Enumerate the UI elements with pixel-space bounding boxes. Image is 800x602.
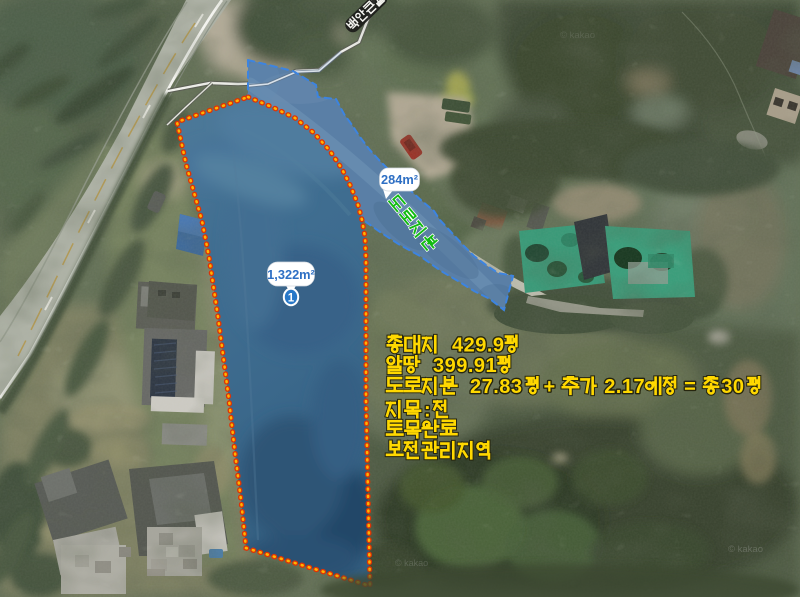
svg-text:© kakao: © kakao: [560, 30, 595, 41]
svg-text:2.17: 2.17: [604, 376, 645, 398]
svg-text:284m²: 284m²: [381, 172, 418, 187]
svg-text:© kakao: © kakao: [728, 544, 763, 555]
svg-text::: :: [424, 400, 431, 422]
svg-text:1,322m²: 1,322m²: [267, 267, 315, 282]
svg-text:27.83: 27.83: [470, 376, 523, 398]
svg-text:=: =: [684, 376, 696, 398]
svg-text:399.91: 399.91: [433, 355, 497, 377]
svg-text:429.9: 429.9: [452, 335, 505, 357]
svg-text:30: 30: [721, 376, 744, 398]
svg-text:1: 1: [288, 293, 295, 305]
svg-text:+: +: [544, 376, 556, 398]
svg-text:© kakao: © kakao: [395, 558, 428, 568]
